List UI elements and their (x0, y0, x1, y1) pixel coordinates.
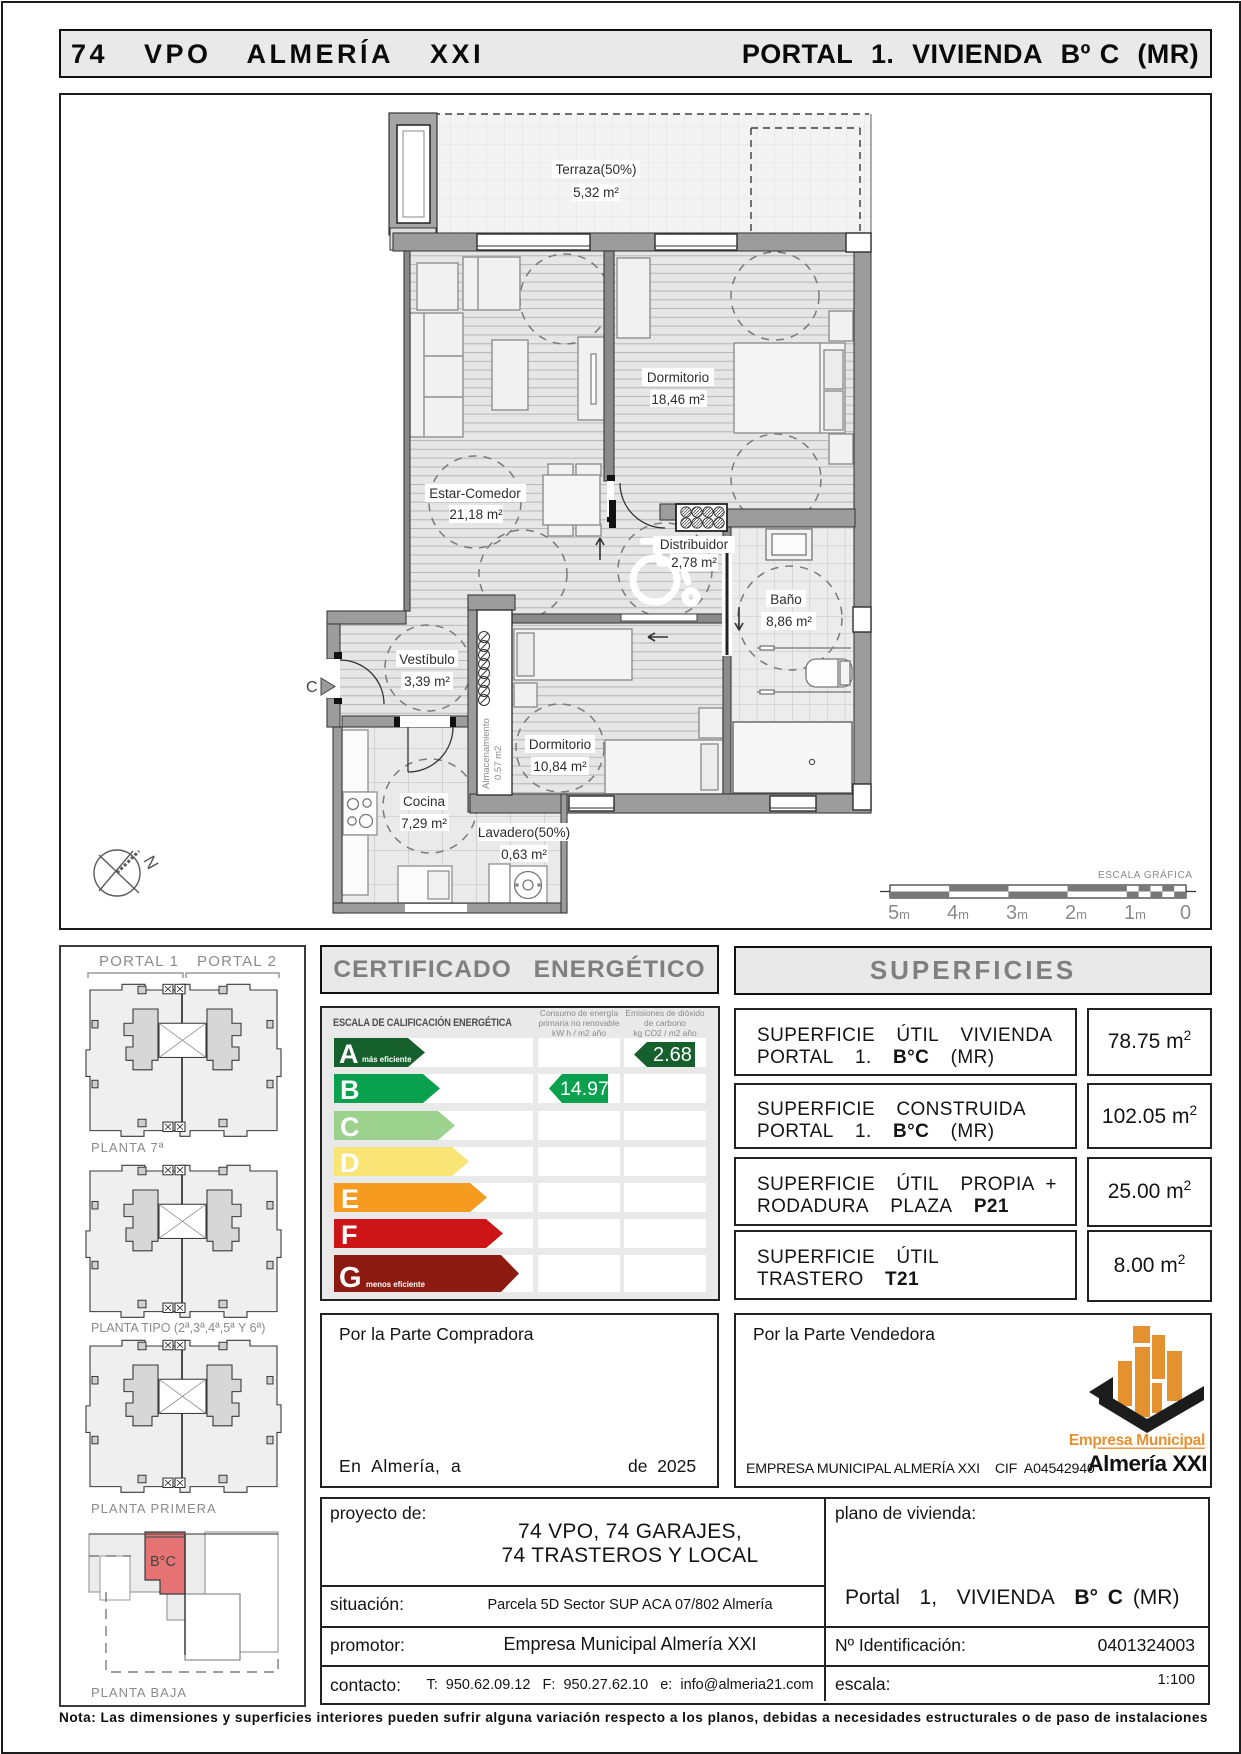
svg-text:PLANTA PRIMERA: PLANTA PRIMERA (91, 1501, 217, 1516)
svg-text:Baño: Baño (770, 592, 802, 607)
svg-text:C: C (340, 1112, 360, 1142)
svg-text:0: 0 (1180, 902, 1191, 924)
svg-text:5m: 5m (888, 902, 910, 924)
svg-text:Almería XXI: Almería XXI (1087, 1451, 1207, 1476)
svg-text:E: E (341, 1184, 359, 1214)
svg-text:Empresa Municipal: Empresa Municipal (1069, 1432, 1205, 1449)
svg-text:Almacenamiento: Almacenamiento (481, 718, 492, 789)
svg-text:PLANTA BAJA: PLANTA BAJA (91, 1685, 187, 1700)
svg-text:Estar-Comedor: Estar-Comedor (429, 486, 521, 501)
svg-text:4m: 4m (947, 902, 969, 924)
svg-text:C: C (306, 679, 318, 696)
svg-text:B°C: B°C (150, 1554, 176, 1570)
svg-text:2,78 m²: 2,78 m² (671, 555, 717, 570)
svg-text:N: N (140, 853, 163, 873)
svg-text:G: G (339, 1262, 362, 1294)
svg-text:B: B (340, 1075, 360, 1105)
svg-text:3m: 3m (1006, 902, 1028, 924)
svg-text:D: D (340, 1148, 360, 1178)
svg-text:PLANTA TIPO (2ª,3ª,4ª,5ª Y 6: PLANTA TIPO (2ª,3ª,4ª,5ª Y 6ª) (91, 1321, 265, 1335)
svg-text:3,39 m²: 3,39 m² (404, 674, 450, 689)
svg-text:Vestíbulo: Vestíbulo (399, 652, 455, 667)
svg-text:PLANTA 7ª: PLANTA 7ª (91, 1140, 165, 1155)
svg-text:8,86 m²: 8,86 m² (766, 614, 812, 629)
svg-text:Terraza(50%): Terraza(50%) (555, 162, 636, 177)
svg-text:10,84 m²: 10,84 m² (533, 759, 587, 774)
svg-text:ESCALA GRÁFICA: ESCALA GRÁFICA (1098, 868, 1193, 881)
svg-text:Lavadero(50%): Lavadero(50%) (478, 825, 570, 840)
svg-text:2m: 2m (1065, 902, 1087, 924)
svg-text:Dormitorio: Dormitorio (647, 370, 709, 385)
svg-text:PORTAL 1: PORTAL 1 (99, 953, 179, 970)
svg-text:7,29 m²: 7,29 m² (401, 816, 447, 831)
svg-text:A: A (339, 1039, 359, 1069)
svg-text:0,63 m²: 0,63 m² (501, 847, 547, 862)
svg-text:0.57 m2: 0.57 m2 (493, 746, 504, 780)
svg-text:Distribuidor: Distribuidor (660, 537, 729, 552)
svg-text:5,32 m²: 5,32 m² (573, 185, 619, 200)
svg-text:18,46 m²: 18,46 m² (651, 392, 705, 407)
svg-text:14.97: 14.97 (560, 1078, 609, 1100)
svg-text:Cocina: Cocina (403, 794, 446, 809)
svg-text:Dormitorio: Dormitorio (529, 737, 591, 752)
svg-text:F: F (341, 1220, 358, 1250)
svg-text:21,18 m²: 21,18 m² (449, 507, 503, 522)
svg-text:PORTAL 2: PORTAL 2 (197, 953, 277, 970)
svg-text:2.68: 2.68 (653, 1044, 692, 1066)
svg-text:menos eficiente: menos eficiente (366, 1280, 426, 1289)
svg-text:más eficiente: más eficiente (362, 1055, 412, 1064)
svg-text:1m: 1m (1124, 902, 1146, 924)
